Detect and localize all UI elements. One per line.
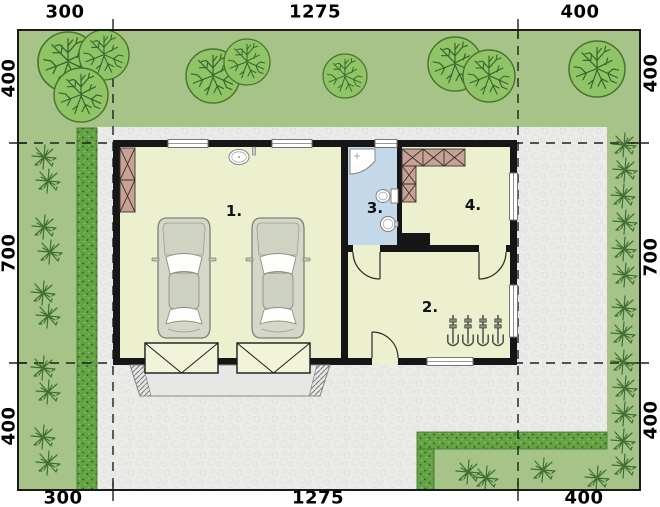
dim-left-400a: 400 <box>0 58 20 97</box>
site-plan-drawing <box>0 0 660 507</box>
tree-symbol <box>323 54 367 98</box>
car-left <box>152 218 216 338</box>
room-label-4: 4. <box>465 196 481 214</box>
tree-symbol <box>463 50 515 102</box>
garage-shelving <box>120 148 135 212</box>
dim-top-1275: 1275 <box>289 2 341 23</box>
dim-left-400b: 400 <box>0 406 20 445</box>
room-label-3: 3. <box>367 199 383 217</box>
dim-top-300: 300 <box>45 2 84 23</box>
door-opening-exterior <box>372 358 398 365</box>
garage-building <box>113 140 518 366</box>
dim-bottom-1275: 1275 <box>292 488 344 507</box>
tree-symbol <box>569 41 625 97</box>
tree-symbol <box>224 39 270 85</box>
room-label-1: 1. <box>226 202 242 220</box>
dim-bottom-300: 300 <box>43 488 82 507</box>
door-opening-room4 <box>479 245 506 252</box>
dim-right-400b: 400 <box>641 400 660 439</box>
dim-right-400a: 400 <box>641 53 660 92</box>
dim-left-700: 700 <box>0 233 20 272</box>
corner-hedge-horizontal <box>417 432 607 449</box>
room1-garage-floor <box>120 147 341 358</box>
room-label-2: 2. <box>422 298 438 316</box>
tree-symbol <box>54 68 108 122</box>
dim-top-400: 400 <box>560 2 599 23</box>
site-plan-page: 300 1275 400 300 1275 400 400 700 400 40… <box>0 0 660 507</box>
door-opening-room3 <box>353 245 380 252</box>
dim-bottom-400: 400 <box>564 488 603 507</box>
corner-hedge-vertical <box>417 449 434 490</box>
dim-right-700: 700 <box>641 237 660 276</box>
left-hedge <box>77 128 97 490</box>
car-right <box>246 218 310 338</box>
wall-stub <box>402 233 430 245</box>
